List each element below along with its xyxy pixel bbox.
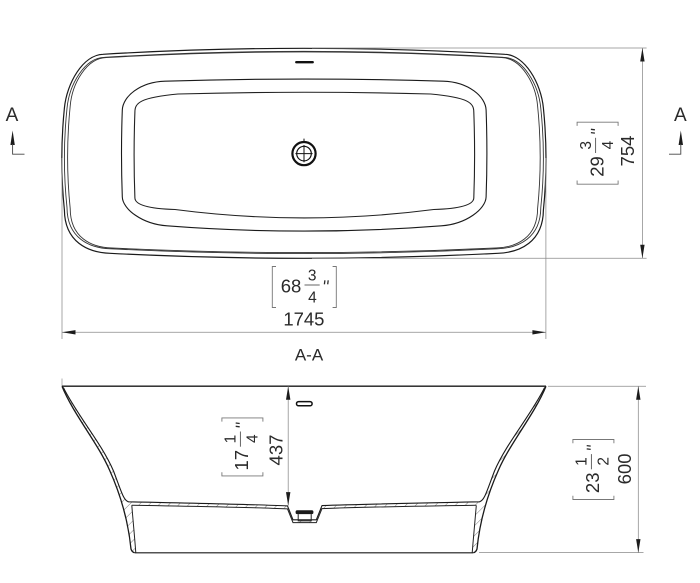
svg-text:4: 4 xyxy=(245,434,262,443)
svg-text:1: 1 xyxy=(223,435,240,444)
svg-text:29: 29 xyxy=(586,156,607,177)
svg-text:A: A xyxy=(674,105,687,126)
svg-text:3: 3 xyxy=(308,267,317,284)
svg-text:600: 600 xyxy=(614,453,635,484)
svg-text:2: 2 xyxy=(596,457,613,466)
svg-text:3: 3 xyxy=(578,141,595,150)
svg-text:437: 437 xyxy=(265,435,286,466)
svg-text:23: 23 xyxy=(582,473,603,494)
svg-text:68: 68 xyxy=(281,276,302,297)
svg-text:17: 17 xyxy=(231,450,252,471)
svg-text:4: 4 xyxy=(308,289,317,306)
svg-text:1745: 1745 xyxy=(283,309,324,330)
svg-text:754: 754 xyxy=(617,136,638,167)
svg-text:A: A xyxy=(6,105,19,126)
svg-text:4: 4 xyxy=(600,140,617,149)
svg-text:1: 1 xyxy=(574,457,591,466)
svg-text:A-A: A-A xyxy=(295,346,324,365)
